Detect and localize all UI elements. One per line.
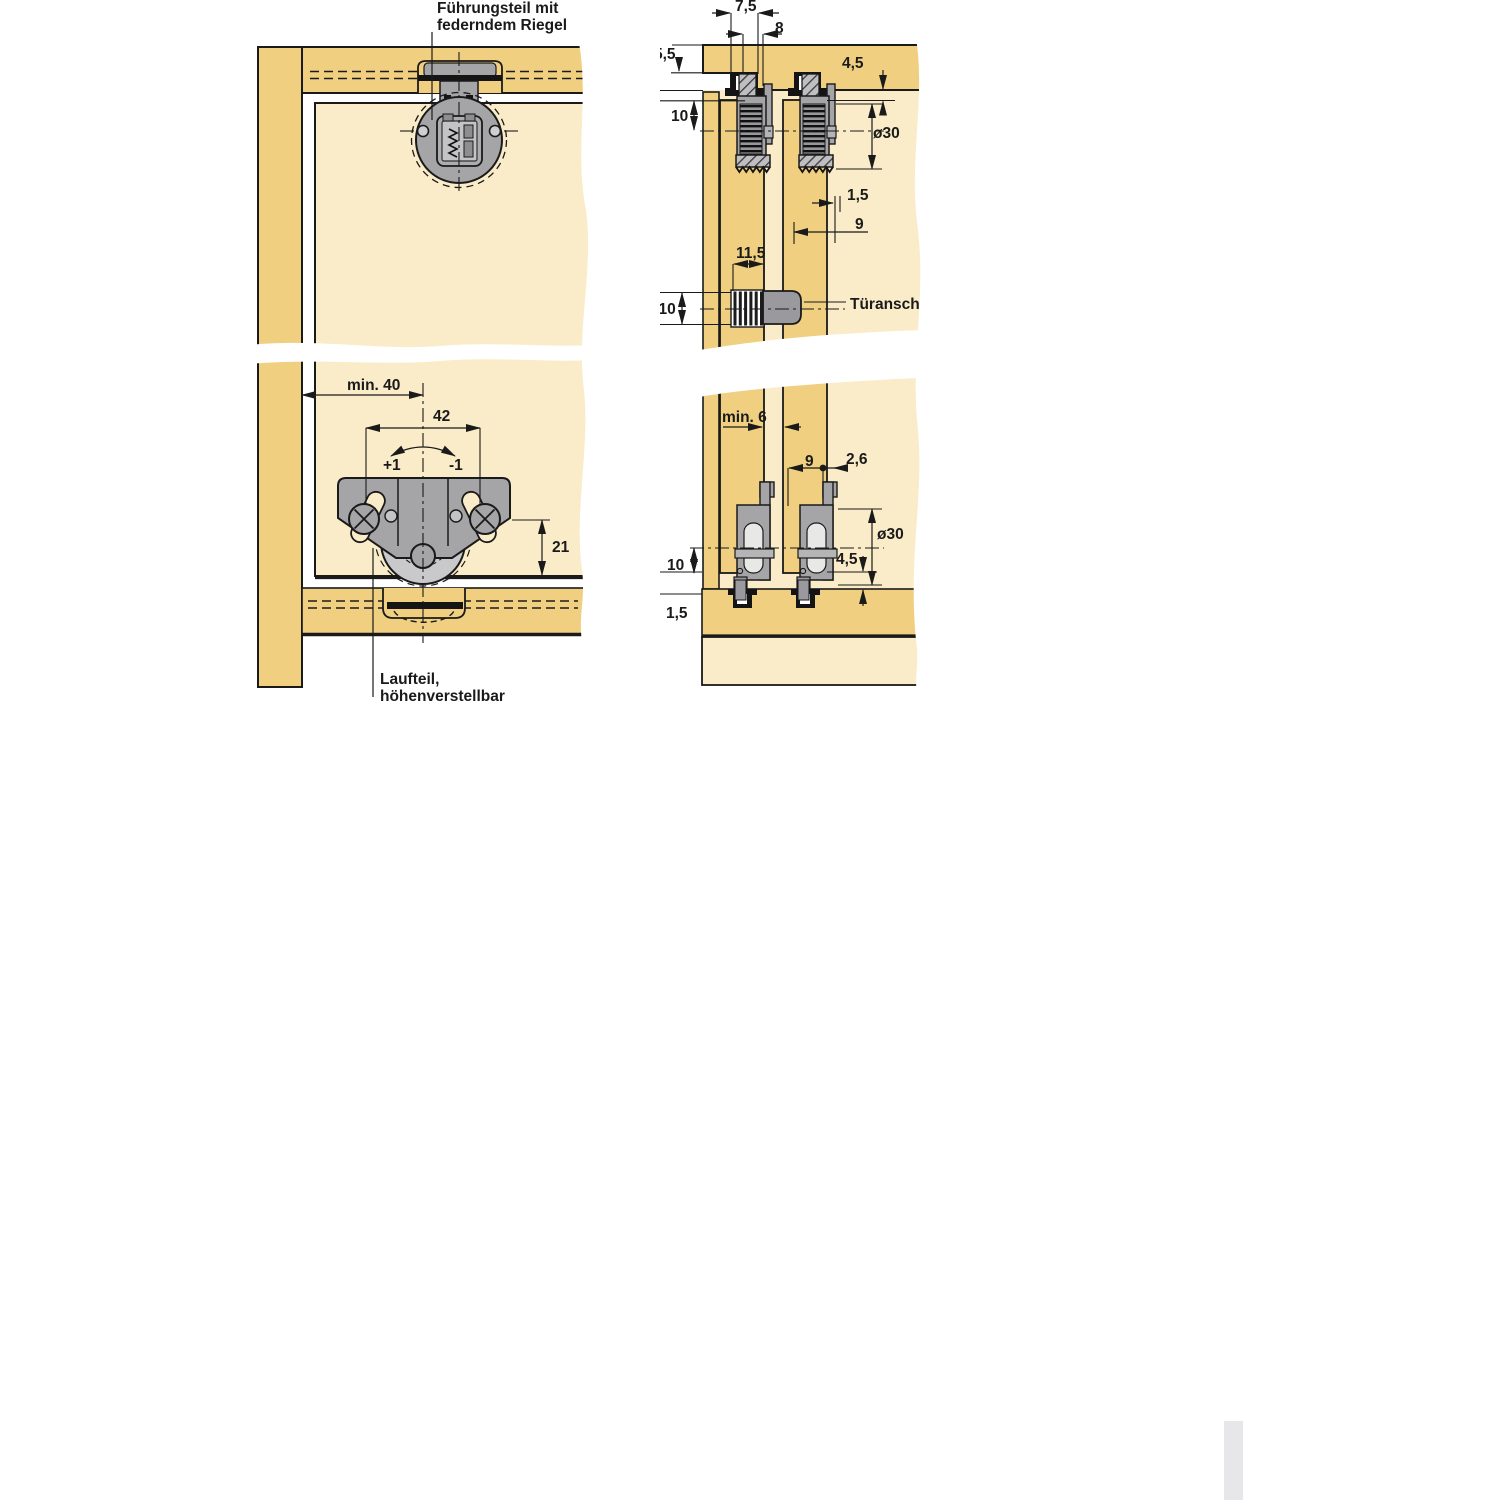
dim-1-5-top: 1,5 xyxy=(847,187,869,204)
left-bottom-section: min. 40 42 +1 -1 21 Laufteil, höhenverst… xyxy=(302,354,592,705)
dim-1-5-bottom: 1,5 xyxy=(666,605,688,622)
guide-part-section xyxy=(736,74,773,172)
dim-11-5: 11,5 xyxy=(736,245,766,262)
dim-4-5-right: 4,5 xyxy=(842,55,864,72)
guide-label-line1: Führungsteil mit xyxy=(437,0,558,17)
guide-label-line2: federndem Riegel xyxy=(437,17,567,34)
dim-9-bottom: 9 xyxy=(805,453,814,470)
dim-10-top: 10 xyxy=(671,108,688,125)
dim-7-5: 7,5 xyxy=(735,0,757,15)
scrollbar-thumb[interactable] xyxy=(1224,1421,1243,1500)
spring-icon xyxy=(803,104,825,154)
dim-9-top: 9 xyxy=(855,216,864,233)
dim-minus1: -1 xyxy=(449,457,463,474)
dim-21: 21 xyxy=(552,539,570,556)
screw-icon xyxy=(470,504,500,534)
guide-part-section xyxy=(799,74,836,172)
dim-dia30-top: ø30 xyxy=(873,125,900,142)
dim-plus1: +1 xyxy=(383,457,401,474)
spring-icon xyxy=(740,104,762,154)
dim-8: 8 xyxy=(775,20,784,37)
screw-hole xyxy=(418,126,429,137)
screw-icon xyxy=(349,504,379,534)
dim-min6: min. 6 xyxy=(722,409,767,426)
runner-label-line1: Laufteil, xyxy=(380,671,439,688)
drawing-page: Führungsteil mit federndem Riegel xyxy=(0,0,1500,1500)
dim-42: 42 xyxy=(433,408,450,425)
rear-door-section xyxy=(720,100,764,573)
dim-min40: min. 40 xyxy=(347,377,400,394)
runner-label-line2: höhenverstellbar xyxy=(380,688,505,705)
dim-dia30-bottom: ø30 xyxy=(877,526,904,543)
cabinet-side-panel xyxy=(258,47,302,687)
dim-2-6: 2,6 xyxy=(846,451,868,468)
front-edge-strip xyxy=(703,92,719,589)
bottom-panel-section xyxy=(702,637,934,685)
stop-head xyxy=(763,291,801,324)
dim-10-bottom: 10 xyxy=(667,557,684,574)
fitting-diagram: Führungsteil mit federndem Riegel xyxy=(0,0,1500,1500)
screw-hole xyxy=(490,126,501,137)
dim-4-5-bottom-right: 4,5 xyxy=(836,551,858,568)
